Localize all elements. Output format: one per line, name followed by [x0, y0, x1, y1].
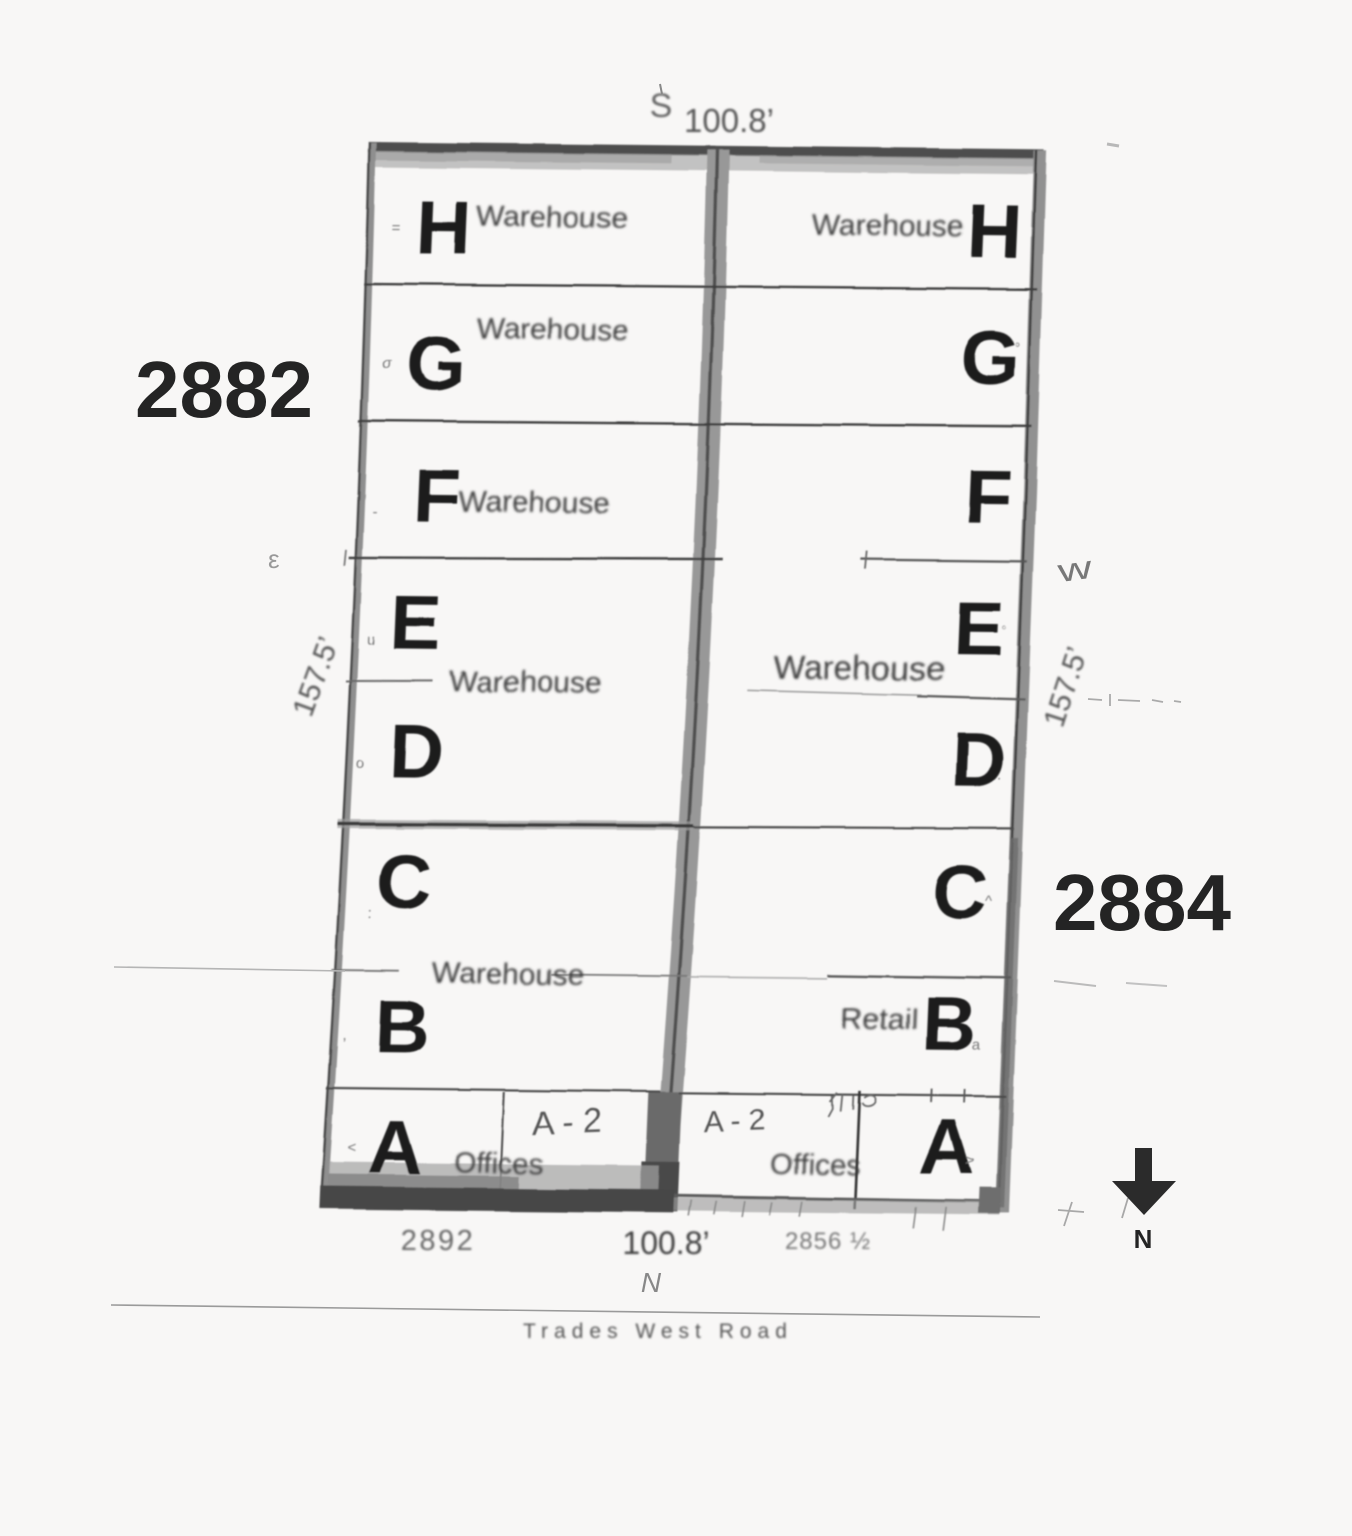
svg-text:E: E — [952, 587, 1006, 673]
svg-text:B: B — [373, 984, 431, 1070]
svg-text:F: F — [963, 455, 1013, 540]
svg-text:ε: ε — [268, 544, 280, 574]
svg-text:,: , — [342, 1027, 347, 1044]
svg-text:2856 ½: 2856 ½ — [785, 1228, 871, 1255]
svg-text:C: C — [931, 850, 989, 936]
svg-text:σ: σ — [382, 355, 393, 372]
svg-text:Warehouse: Warehouse — [476, 312, 630, 347]
svg-text:=: = — [392, 219, 402, 236]
svg-text:D: D — [949, 718, 1007, 804]
svg-text:Warehouse: Warehouse — [431, 957, 585, 992]
svg-text:N: N — [641, 1267, 662, 1298]
svg-text:Warehouse: Warehouse — [811, 209, 965, 244]
svg-text:C: C — [375, 839, 433, 925]
svg-text:A - 2: A - 2 — [704, 1103, 766, 1139]
svg-text:Retail: Retail — [840, 1003, 918, 1037]
svg-text:Warehouse: Warehouse — [449, 665, 603, 700]
svg-text:<: < — [347, 1139, 357, 1156]
svg-text:>: > — [965, 1152, 975, 1169]
svg-text:·: · — [997, 769, 1003, 786]
svg-text:◦: ◦ — [1001, 619, 1007, 636]
svg-text:Offices: Offices — [770, 1149, 861, 1182]
svg-text:o: o — [355, 755, 364, 772]
svg-text:2892: 2892 — [401, 1225, 476, 1257]
svg-text::: : — [367, 905, 372, 922]
svg-text:a: a — [972, 1036, 982, 1053]
svg-text:Offices: Offices — [453, 1147, 544, 1180]
svg-text:2882: 2882 — [135, 345, 313, 434]
svg-text:w: w — [1054, 549, 1095, 590]
svg-text:H: H — [414, 186, 472, 272]
svg-text:A: A — [367, 1105, 425, 1191]
svg-text:F: F — [412, 454, 462, 539]
svg-text:N: N — [1134, 1224, 1153, 1254]
svg-text:-: - — [372, 503, 378, 520]
svg-text:2884: 2884 — [1053, 858, 1231, 947]
svg-text:^: ^ — [985, 892, 993, 909]
svg-text:Warehouse: Warehouse — [772, 649, 946, 689]
svg-text:D: D — [387, 710, 445, 796]
svg-text:°: ° — [1014, 339, 1021, 356]
svg-text:100.8’: 100.8’ — [622, 1225, 709, 1261]
svg-text:Trades West Road: Trades West Road — [523, 1320, 793, 1343]
svg-text:Warehouse: Warehouse — [475, 200, 629, 235]
svg-text:Warehouse: Warehouse — [457, 485, 611, 520]
svg-text:A: A — [918, 1105, 976, 1191]
svg-text:B: B — [920, 981, 978, 1067]
svg-text:100.8’: 100.8’ — [684, 102, 774, 139]
svg-text:u: u — [367, 631, 376, 648]
svg-text:A - 2: A - 2 — [532, 1102, 602, 1143]
svg-text:H: H — [965, 190, 1023, 276]
svg-text:E: E — [389, 580, 443, 666]
svg-text:G: G — [404, 322, 467, 408]
svg-text:G: G — [959, 316, 1022, 402]
